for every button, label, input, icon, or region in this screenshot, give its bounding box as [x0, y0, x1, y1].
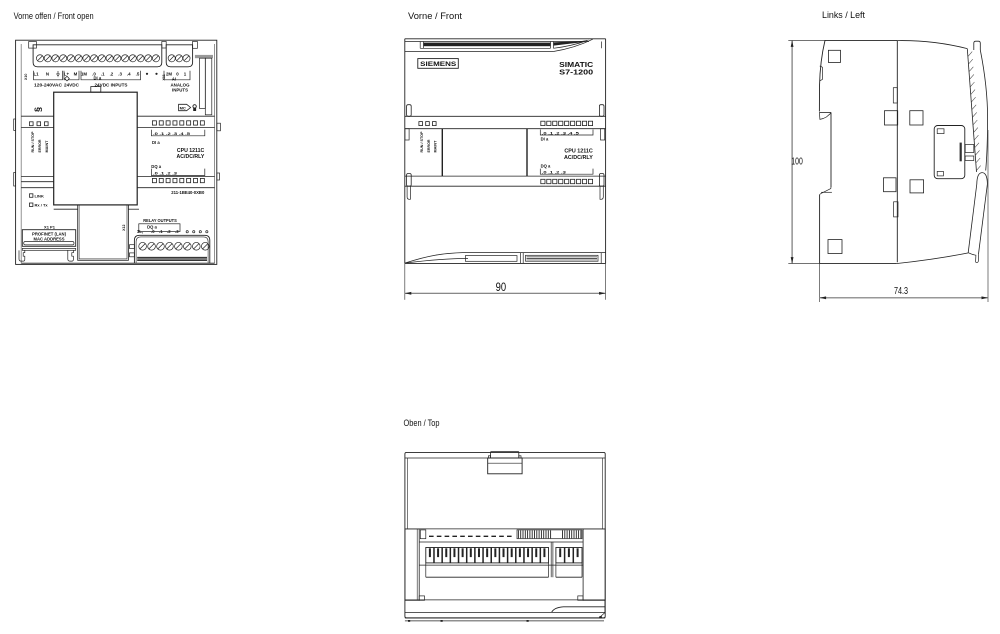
svg-text:INPUTS: INPUTS: [172, 88, 188, 93]
svg-text:100: 100: [791, 155, 803, 167]
svg-text:RELAY OUTPUTS: RELAY OUTPUTS: [143, 218, 177, 223]
svg-text:S7-1200: S7-1200: [559, 68, 593, 77]
svg-text:MAINT: MAINT: [45, 140, 49, 153]
svg-text:MC: MC: [180, 105, 186, 110]
svg-text:24VDC: 24VDC: [64, 82, 80, 87]
svg-text:N: N: [46, 72, 49, 77]
svg-text:.0 .1 .2 .3: .0 .1 .2 .3: [153, 171, 178, 176]
svg-text:.0 .1 .2 .3: .0 .1 .2 .3: [542, 170, 567, 175]
svg-text:MAINT: MAINT: [434, 140, 438, 153]
svg-text:SIEMENS: SIEMENS: [420, 61, 456, 68]
svg-text:§: §: [33, 107, 43, 112]
svg-text:.0 .1 .2 .3 .4 .5: .0 .1 .2 .3 .4 .5: [542, 130, 580, 135]
svg-text:AC/DC/RLY: AC/DC/RLY: [177, 154, 205, 160]
svg-text:DI a: DI a: [94, 75, 102, 80]
svg-text:90: 90: [496, 280, 507, 294]
svg-text:ANALOG: ANALOG: [171, 82, 191, 87]
svg-text:DI a: DI a: [152, 140, 160, 145]
svg-text:.3: .3: [118, 72, 122, 77]
svg-text:AI: AI: [172, 76, 176, 81]
svg-text:211-1BE40-0XB0: 211-1BE40-0XB0: [171, 190, 205, 195]
svg-text:DQ a: DQ a: [541, 164, 551, 169]
svg-text:M: M: [74, 72, 78, 77]
svg-text:.4: .4: [127, 72, 131, 77]
svg-text:RUN / STOP: RUN / STOP: [31, 131, 35, 152]
svg-text:1M: 1M: [81, 72, 87, 77]
svg-text:.0 .1 .2 .3 .4 .5: .0 .1 .2 .3 .4 .5: [153, 131, 191, 136]
svg-text:MAC ADDRESS: MAC ADDRESS: [34, 236, 65, 241]
svg-text:AC/DC/RLY: AC/DC/RLY: [564, 155, 593, 161]
svg-text:Vorne / Front: Vorne / Front: [408, 11, 462, 22]
svg-text:CPU 1211C: CPU 1211C: [564, 149, 593, 155]
svg-text:Links / Left: Links / Left: [822, 10, 865, 21]
svg-text:120-240VAC: 120-240VAC: [34, 82, 63, 87]
svg-text:RUN / STOP: RUN / STOP: [420, 131, 424, 152]
svg-text:DQ a: DQ a: [151, 164, 161, 169]
svg-text:X10: X10: [24, 74, 28, 80]
svg-text:.1: .1: [101, 72, 105, 77]
svg-text:.5: .5: [136, 72, 140, 77]
svg-text:L1: L1: [33, 72, 39, 77]
svg-text:ERROR: ERROR: [38, 139, 42, 152]
svg-text:.2: .2: [110, 72, 114, 77]
svg-text:X12: X12: [122, 224, 126, 230]
svg-text:Rx / Tx: Rx / Tx: [35, 203, 49, 208]
svg-text:ERROR: ERROR: [427, 139, 431, 152]
svg-text:L+: L+: [64, 72, 70, 77]
svg-text:DI a: DI a: [541, 137, 549, 142]
svg-text:1L,: 1L,: [137, 229, 143, 234]
svg-text:Oben / Top: Oben / Top: [404, 418, 440, 429]
svg-text:74.3: 74.3: [894, 286, 908, 297]
svg-text:X1 P1: X1 P1: [44, 225, 56, 230]
svg-text:LINK: LINK: [35, 193, 44, 198]
svg-text:Vorne offen / Front open: Vorne offen / Front open: [14, 11, 94, 22]
